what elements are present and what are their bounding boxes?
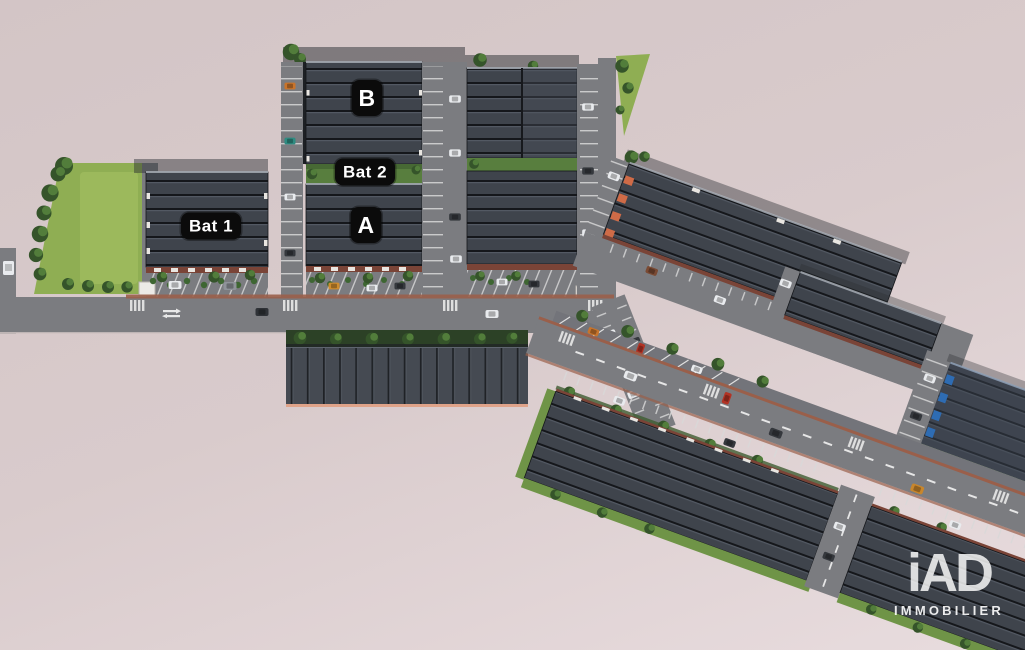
brand-subtitle: IMMOBILIER <box>883 603 1015 618</box>
main-road <box>0 295 614 335</box>
brand-watermark: iAD IMMOBILIER <box>883 546 1015 618</box>
building-se-roof <box>467 171 577 264</box>
label-building-bat1: Bat 1 <box>181 213 241 240</box>
label-building-b: B <box>352 80 383 116</box>
site-plan-render: B Bat 2 A Bat 1 iAD IMMOBILIER <box>0 0 1025 650</box>
label-building-a: A <box>351 207 382 243</box>
garage-row <box>286 330 528 407</box>
label-building-bat2: Bat 2 <box>335 159 395 186</box>
brand-name: iAD <box>883 546 1015 600</box>
garage-units <box>286 348 528 404</box>
aerial-scene <box>0 0 1025 650</box>
